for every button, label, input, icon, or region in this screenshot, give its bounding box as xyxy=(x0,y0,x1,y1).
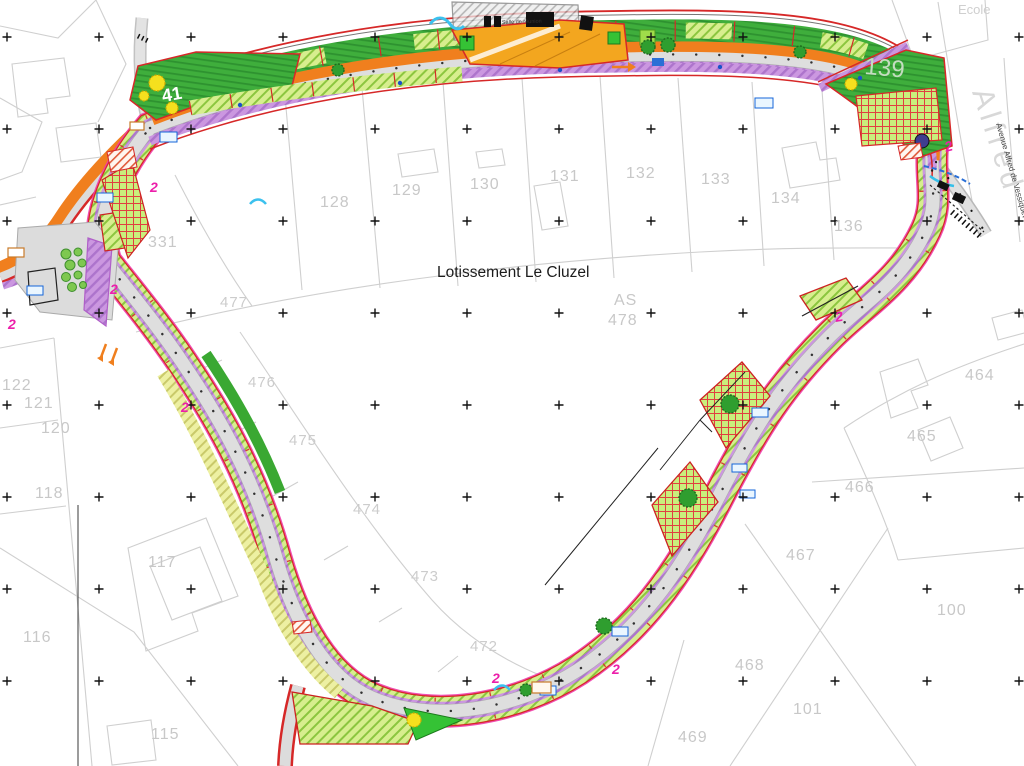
revision-mark: 2 xyxy=(109,281,118,297)
parcel-number: 118 xyxy=(35,485,64,502)
site-plan-map: Lotissement Le Cluzel Ecole Alfred Avenu… xyxy=(0,0,1024,766)
activity-zone xyxy=(452,20,628,68)
zone-details xyxy=(8,2,984,744)
parcel-number: 131 xyxy=(550,168,580,185)
parcel-number: 132 xyxy=(626,165,656,182)
parcel-number: 477 xyxy=(220,294,248,311)
parcel-number: 133 xyxy=(701,171,731,188)
zone-41-label: 41 xyxy=(160,83,183,106)
parcel-number: 469 xyxy=(678,729,708,746)
zone-139-label: 139 xyxy=(863,53,905,83)
section-prefix: AS xyxy=(614,292,637,309)
parcel-number: 101 xyxy=(793,701,823,718)
revision-mark: 2 xyxy=(7,316,16,332)
parcel-number: 134 xyxy=(771,190,801,207)
parcel-number: 116 xyxy=(23,629,52,646)
parcel-number: 464 xyxy=(965,367,995,384)
parcel-number: 130 xyxy=(470,176,500,193)
parcel-number: 121 xyxy=(24,395,54,412)
parcel-number: 136 xyxy=(834,218,864,235)
revision-mark: 2 xyxy=(611,661,620,677)
parcel-number: 466 xyxy=(845,479,875,496)
site-plan-screenshot: Lotissement Le Cluzel Ecole Alfred Avenu… xyxy=(0,0,1024,766)
parcel-number: 467 xyxy=(786,547,816,564)
parcel-number: 476 xyxy=(248,374,276,391)
parcel-number: 473 xyxy=(411,568,439,585)
revision-mark: 2 xyxy=(491,670,500,686)
map-title: Lotissement Le Cluzel xyxy=(437,264,590,281)
parcel-number: 474 xyxy=(353,501,381,518)
revision-mark: 2 xyxy=(149,179,158,195)
parcel-number: 331 xyxy=(148,234,178,251)
parcel-number: 115 xyxy=(151,726,180,743)
parcel-number: 478 xyxy=(608,312,638,329)
parcel-number: 117 xyxy=(148,554,177,571)
parcel-number: 120 xyxy=(41,420,71,437)
parcel-number: 129 xyxy=(392,182,422,199)
parcel-number: 128 xyxy=(320,194,350,211)
parcel-number: 472 xyxy=(470,638,498,655)
revision-mark: 2 xyxy=(180,399,189,415)
parcel-number: 468 xyxy=(735,657,765,674)
school-label: Ecole xyxy=(958,2,991,17)
parcel-number: 465 xyxy=(907,428,937,445)
parcel-number: 100 xyxy=(937,602,967,619)
parcel-number: 122 xyxy=(2,377,32,394)
parcel-number: 475 xyxy=(289,432,317,449)
